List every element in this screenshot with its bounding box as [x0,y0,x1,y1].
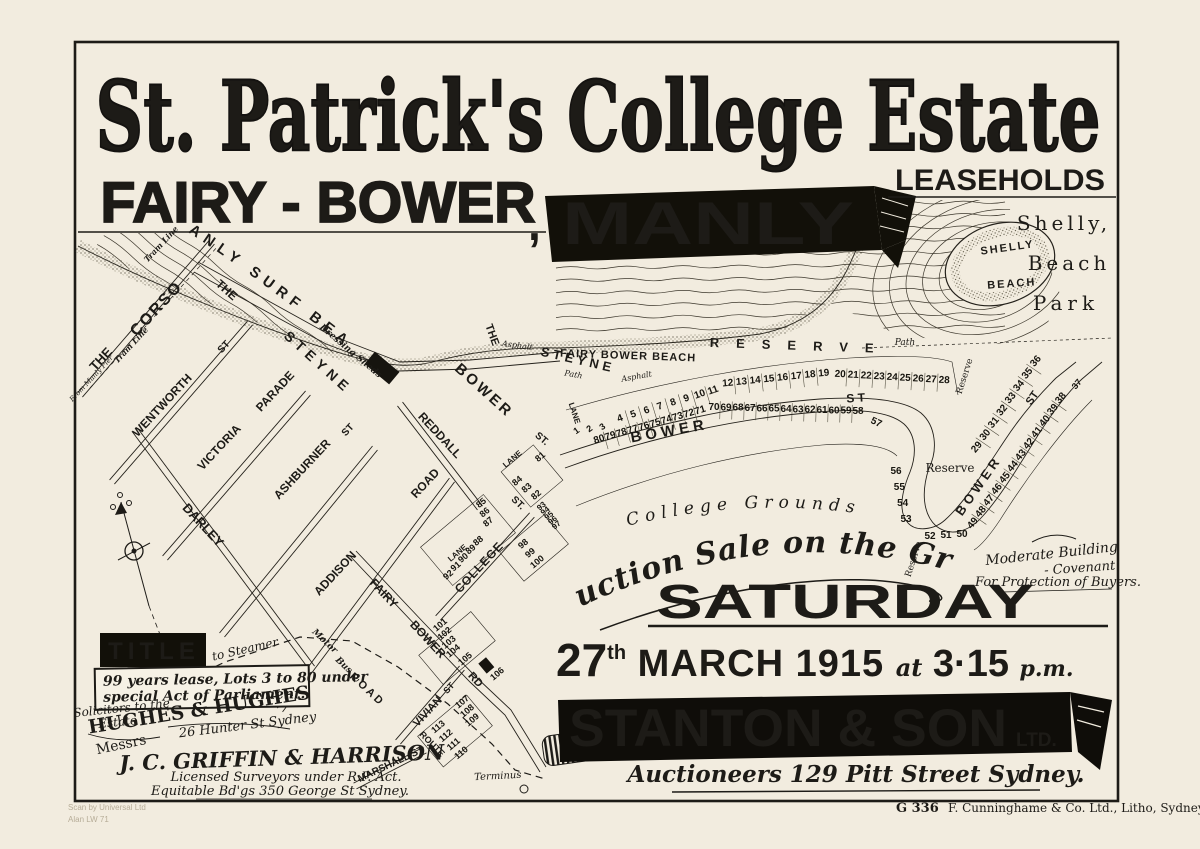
to-steamer-label: to Steamer [211,634,281,663]
lot-number: 68 [732,403,744,414]
subtitle-comma: , [528,198,541,250]
ashburner-st-label: ST [340,422,357,439]
reserve-label-2: Reserve [925,461,974,475]
lot-number: 54 [897,498,909,509]
stanton-ltd: LTD. [1016,730,1057,751]
lot-number: 13 [735,376,747,388]
lot-number: 66 [756,403,768,414]
lot-number: 8 [669,396,678,408]
lot-number: 56 [890,466,902,477]
lot-number: 67 [744,403,756,414]
lot-number: 24 [886,372,898,384]
lot-number: 57 [869,415,884,430]
lot-number: 4 [616,412,625,424]
st-label-1: ST. [509,494,527,512]
path-label-1: Path [894,338,915,348]
stanton-name: STANTON & SON [569,699,1007,758]
scan-watermark-2: Alan LW 71 [68,815,109,824]
shelly-park-line-2: Beach [1028,251,1111,275]
reddall-label: REDDALL [415,410,464,461]
steyne-the-label-2: THE [482,323,501,348]
leaseholds-label: LEASEHOLDS [895,163,1105,196]
bower-st-label-upper: BOWER [451,360,516,421]
lot-number: 58 [852,406,864,417]
darley-label: DARLEY [180,500,228,550]
lot-number: 17 [790,370,802,382]
lot-number: 105 [456,650,474,667]
surveyors-address: Equitable Bd'gs 350 George St Sydney. [150,784,409,799]
lot-number: 65 [768,404,780,415]
lot-number: 81 [533,450,547,464]
lot-number: 10 [693,387,708,401]
poster-canvas: 1234567891011121314151617181920212223242… [0,0,1200,849]
lot-number: 6 [642,404,651,416]
lot-number: 7 [656,400,665,412]
lot-number: 9 [682,392,691,404]
auction-date-line: 27th MARCH 1915 at 3·15 p.m. [556,634,1074,686]
lot-number: 28 [938,375,950,387]
lot-number: 5 [629,408,638,420]
victoria-label: VICTORIA [194,421,243,473]
lot-number: 21 [847,369,859,381]
reserve-spread-label: RESERVE [709,335,890,356]
plate-number: G 336 [896,801,939,816]
surveyors-services: Licensed Surveyors under R.P. Act. [169,770,401,785]
lot-number: 50 [956,529,968,540]
lot-number: 19 [818,368,830,380]
title-box-heading: TITLE [108,638,200,665]
lot-number: 38 [1053,390,1069,406]
lot-number: 3 [597,421,607,432]
lot-number: 25 [899,372,911,384]
lot-number: 20 [834,369,846,381]
auction-day: SATURDAY [656,574,1034,628]
lot-number: 1 [571,425,581,436]
lot-number: 11 [706,384,720,398]
lot-number: 62 [804,405,816,416]
st-label-2: ST. [533,430,551,448]
estate-poster: 1234567891011121314151617181920212223242… [0,0,1200,849]
lot-number: 15 [763,373,775,385]
poster-title: St. Patrick's College Estate [95,60,1100,173]
shelly-park-line-1: Shelly, [1017,211,1111,235]
lot-number: 51 [940,530,952,541]
addison-label: ADDISON [311,548,359,598]
lot-number: 26 [912,373,924,385]
lot-number: 29 [969,439,985,455]
lane-label-1: LANE [567,401,582,425]
lot-number: 69 [720,402,732,413]
lot-number: 22 [860,370,872,382]
auctioneers-line: Auctioneers 129 Pitt Street Sydney. [625,761,1084,788]
scan-watermark-1: Scan by Universal Ltd [68,803,146,812]
reserve-label-1: Reserve [955,357,976,395]
lot-number: 14 [749,375,761,387]
addison-road-label: ROAD [408,465,443,501]
lot-number: 12 [722,378,734,390]
lot-number: 16 [777,372,789,384]
lot-number: 59 [840,406,852,417]
footer: G 336 F. Cunninghame & Co. Ltd., Litho, … [68,801,1200,824]
lot-number: 60 [828,405,840,416]
terminus-circle [520,785,528,793]
lot-number: 53 [900,514,912,525]
title-box: TITLE 99 years lease, Lots 3 to 80 under… [73,633,446,799]
terminus-label: Terminus [474,770,522,783]
ashburner-label: ASHBURNER [271,436,334,502]
lot-number: 55 [894,482,906,493]
path-label-2: Path [563,368,583,380]
banner-manly: MANLY [562,190,854,257]
parade-label: PARADE [253,368,297,414]
lot-number: 27 [925,374,937,386]
lot-number: 61 [816,405,828,416]
shelly-park-line-3: Park [1033,291,1099,315]
lot-number: 70 [708,402,720,413]
stanton-banner-tail [1070,692,1112,770]
lane-label-2: LANE [501,448,524,469]
subtitle-fairy-bower: FAIRY - BOWER [100,171,535,235]
bower-st-st-main: S T [846,390,866,405]
asphalt-label-2: Asphalt [620,369,654,384]
lot-number: 18 [804,369,816,381]
lot-number: 23 [873,371,885,383]
bower-st-st-ridge: ST [1024,389,1042,408]
lot-number: 64 [780,404,792,415]
fairy-bower-rd-label-3: RD [465,670,485,690]
lot-number: 2 [584,423,594,434]
lot-number: 63 [792,404,804,415]
printer-credit: F. Cunninghame & Co. Ltd., Litho, Sydney [948,801,1200,815]
